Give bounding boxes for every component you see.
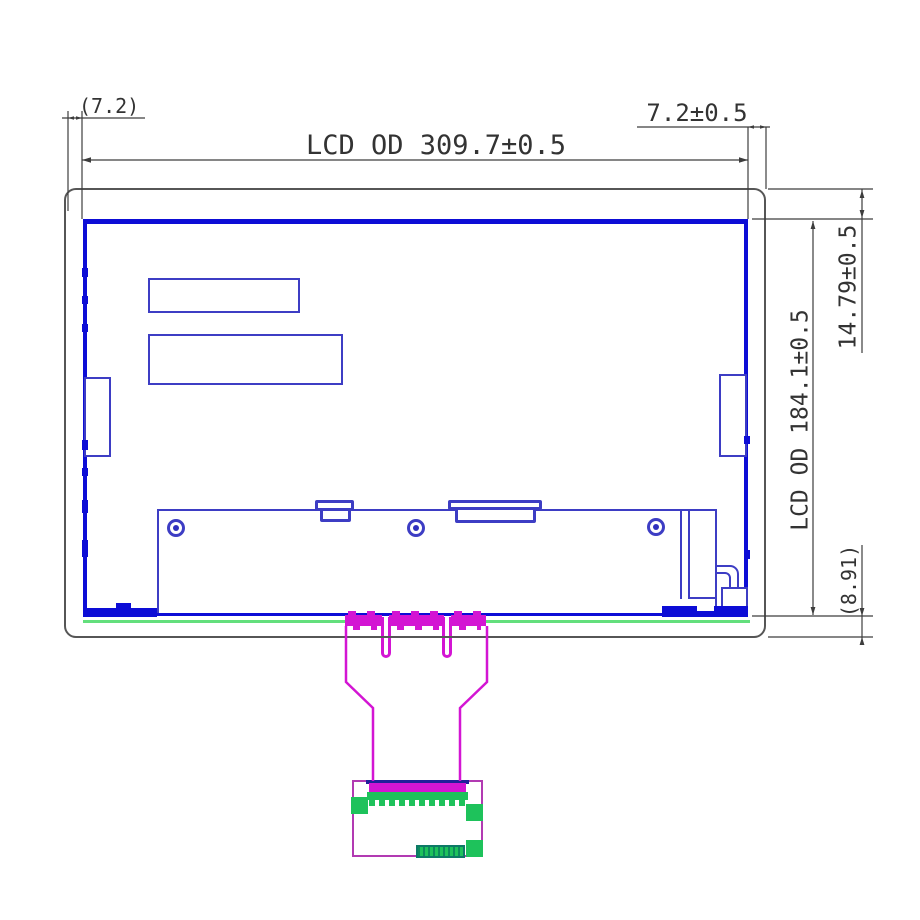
board-connector-pins [369,800,466,806]
outer-frame [64,188,766,638]
dim-lcd-outline-width: LCD OD 309.7±0.5 [303,132,569,159]
board-bottom-connector [416,845,465,858]
board-pad-bottom-right [466,840,483,857]
board-pad-left [351,797,368,814]
fpc-contact-bar [345,615,382,626]
dim-left-offset-ref: (7.2) [79,96,139,116]
fpc-contact-bar [451,615,486,626]
dim-top-margin: 14.79±0.5 [838,225,861,350]
drawing-canvas: (7.2) LCD OD 309.7±0.5 7.2±0.5 14.79±0.5… [0,0,920,920]
board-pad-right [466,804,483,821]
fpc-contact-bar [389,615,444,626]
fpc-cable-outline [346,626,487,781]
board-connector-body [367,792,468,800]
dim-bottom-margin-ref: (8.91) [839,545,859,617]
dim-lcd-outline-height: LCD OD 184.1±0.5 [790,309,813,531]
dim-right-offset: 7.2±0.5 [644,101,750,125]
